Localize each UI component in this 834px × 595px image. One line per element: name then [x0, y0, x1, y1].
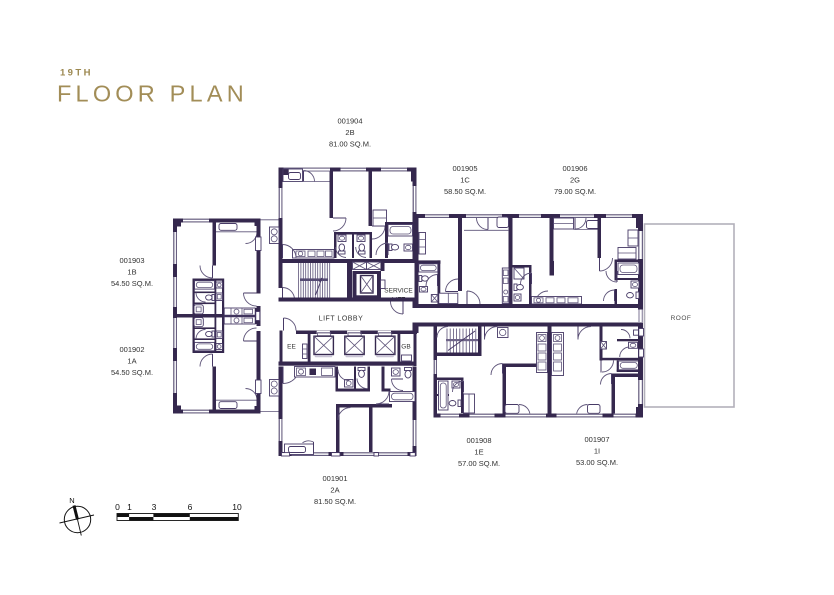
svg-text:19TH: 19TH [60, 68, 93, 79]
svg-text:1A: 1A [127, 357, 136, 366]
svg-text:81.00 SQ.M.: 81.00 SQ.M. [329, 140, 371, 149]
svg-text:001906: 001906 [562, 164, 587, 173]
svg-text:10: 10 [232, 502, 242, 512]
svg-text:1C: 1C [460, 176, 470, 185]
svg-text:EE: EE [287, 344, 296, 351]
svg-text:N: N [69, 496, 74, 505]
svg-text:001902: 001902 [119, 345, 144, 354]
svg-text:001908: 001908 [466, 436, 491, 445]
svg-text:54.50 SQ.M.: 54.50 SQ.M. [111, 368, 153, 377]
svg-text:1: 1 [127, 502, 132, 512]
svg-text:001907: 001907 [584, 435, 609, 444]
svg-text:6: 6 [188, 502, 193, 512]
svg-text:53.00 SQ.M.: 53.00 SQ.M. [576, 458, 618, 467]
svg-text:001903: 001903 [119, 256, 144, 265]
svg-text:2B: 2B [345, 128, 354, 137]
svg-text:GB: GB [401, 344, 410, 351]
svg-text:2A: 2A [330, 486, 339, 495]
svg-text:SERVICE: SERVICE [384, 288, 413, 295]
svg-text:1I: 1I [594, 447, 600, 456]
svg-text:58.50 SQ.M.: 58.50 SQ.M. [444, 187, 486, 196]
svg-text:1B: 1B [127, 268, 136, 277]
svg-text:LIFT LOBBY: LIFT LOBBY [319, 316, 364, 323]
svg-text:57.00 SQ.M.: 57.00 SQ.M. [458, 459, 500, 468]
svg-text:0: 0 [115, 502, 120, 512]
svg-text:001904: 001904 [337, 117, 362, 126]
svg-text:79.00 SQ.M.: 79.00 SQ.M. [554, 187, 596, 196]
svg-text:ROOF: ROOF [671, 315, 692, 322]
svg-text:001905: 001905 [452, 164, 477, 173]
svg-text:3: 3 [152, 502, 157, 512]
svg-text:1E: 1E [474, 448, 483, 457]
svg-text:001901: 001901 [322, 474, 347, 483]
svg-text:54.50 SQ.M.: 54.50 SQ.M. [111, 279, 153, 288]
svg-text:FLOOR PLAN: FLOOR PLAN [57, 81, 248, 107]
svg-text:81.50 SQ.M.: 81.50 SQ.M. [314, 497, 356, 506]
svg-text:2G: 2G [570, 176, 580, 185]
